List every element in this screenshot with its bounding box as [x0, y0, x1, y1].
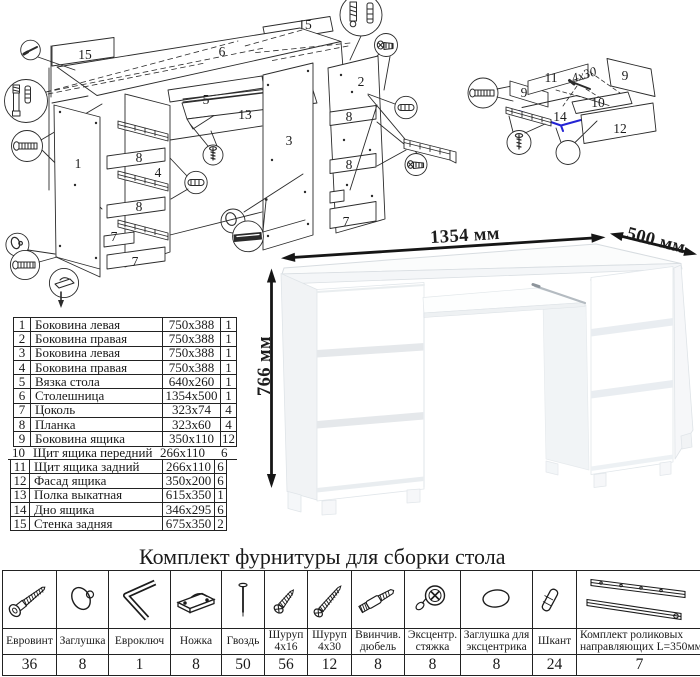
svg-text:8: 8 — [346, 109, 353, 124]
svg-text:7: 7 — [343, 214, 350, 229]
svg-text:766 мм: 766 мм — [255, 336, 275, 396]
svg-text:4: 4 — [155, 165, 162, 180]
svg-text:6: 6 — [219, 44, 226, 59]
svg-text:15: 15 — [78, 47, 92, 62]
svg-text:11: 11 — [545, 70, 558, 85]
svg-text:8: 8 — [136, 199, 143, 214]
svg-text:14: 14 — [553, 109, 567, 124]
svg-text:2: 2 — [358, 74, 365, 89]
svg-text:12: 12 — [613, 121, 627, 136]
svg-text:8: 8 — [136, 150, 143, 165]
svg-text:9: 9 — [521, 85, 528, 100]
svg-text:5: 5 — [203, 92, 210, 107]
svg-text:3: 3 — [286, 133, 293, 148]
svg-text:7: 7 — [111, 229, 118, 244]
svg-text:7: 7 — [132, 254, 139, 269]
svg-text:8: 8 — [346, 157, 353, 172]
svg-text:9: 9 — [622, 68, 629, 83]
svg-text:13: 13 — [238, 107, 252, 122]
svg-text:1: 1 — [75, 156, 82, 171]
